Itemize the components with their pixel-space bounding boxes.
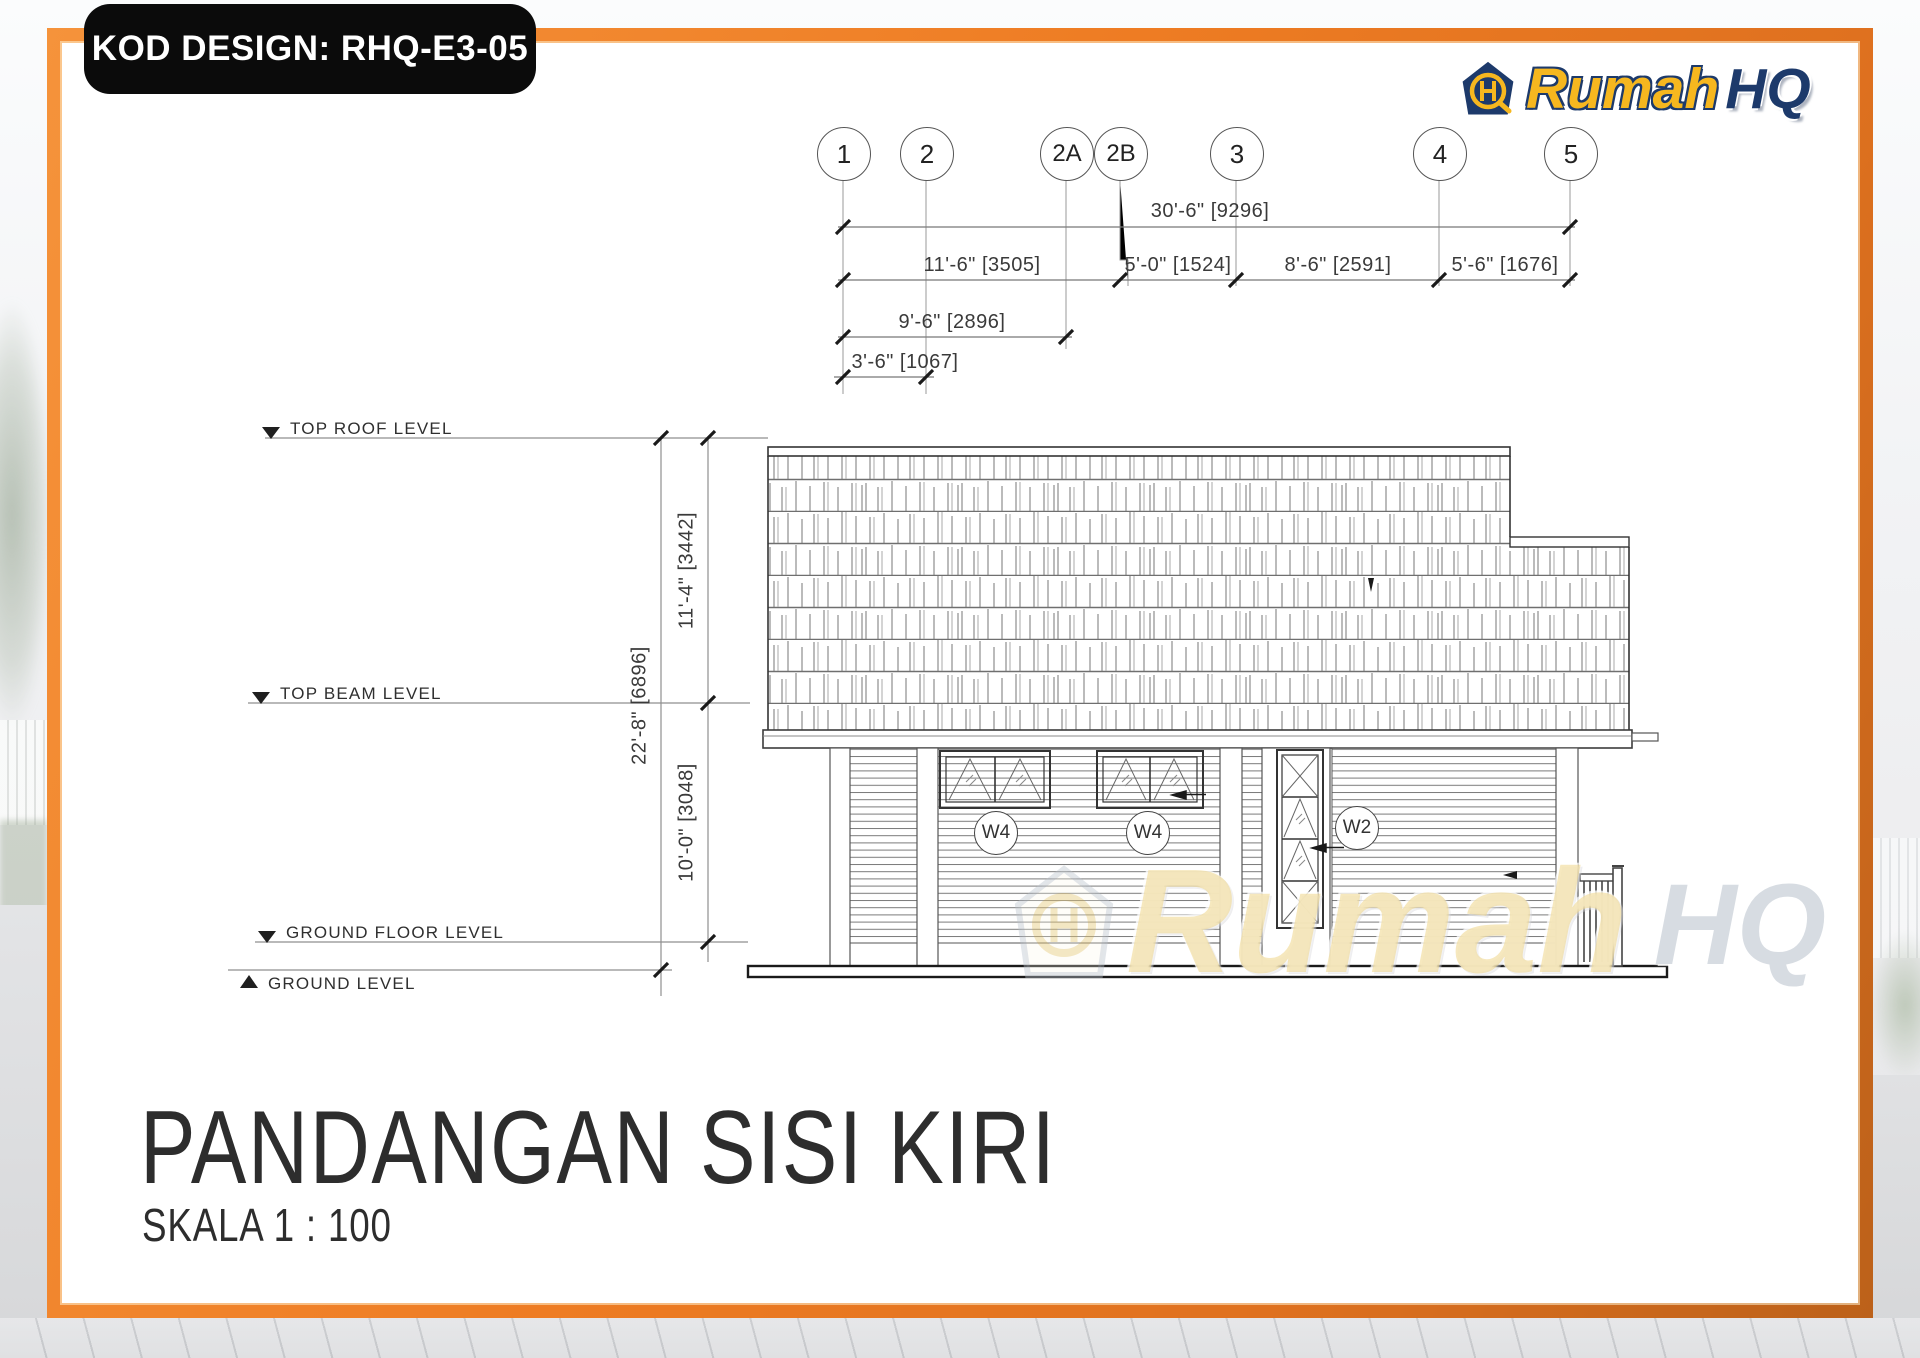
window-tag-w4-2-label: W4	[1134, 822, 1163, 844]
grid-bubble-2b: 2B	[1094, 127, 1148, 181]
window-tag-w4-1: W4	[974, 811, 1018, 855]
grid-bubble-2-label: 2	[920, 139, 934, 170]
elevation-sheet-page: KOD DESIGN: RHQ-E3-05 Rumah HQ	[0, 0, 1920, 1358]
window-tag-w2: W2	[1335, 806, 1379, 850]
dim-segment-1: 11'-6" [3505]	[923, 254, 1040, 277]
roof	[763, 447, 1658, 748]
window-tag-w4-2: W4	[1126, 811, 1170, 855]
level-label-ground-floor: GROUND FLOOR LEVEL	[286, 923, 504, 943]
level-markers	[240, 427, 280, 988]
dim-vertical-lower: 10'-0" [3048]	[676, 703, 699, 943]
dim-sub-overall: 9'-6" [2896]	[899, 311, 1006, 334]
dim-segment-4: 5'-6" [1676]	[1452, 254, 1559, 277]
level-label-top-beam: TOP BEAM LEVEL	[280, 684, 442, 704]
dim-sub-segment: 3'-6" [1067]	[852, 351, 959, 374]
level-label-top-roof: TOP ROOF LEVEL	[290, 419, 453, 439]
window-tag-w2-label: W2	[1343, 817, 1372, 839]
dim-vertical-overall: 22'-8" [6896]	[629, 586, 652, 826]
grid-bubble-1-label: 1	[837, 139, 851, 170]
drawing-scale: SKALA 1 : 100	[142, 1198, 392, 1252]
grid-bubble-4: 4	[1413, 127, 1467, 181]
page-title: PANDANGAN SISI KIRI	[140, 1094, 1057, 1203]
dim-segment-2: 5'-0" [1524]	[1125, 254, 1232, 277]
dim-segment-3: 8'-6" [2591]	[1285, 254, 1392, 277]
grid-bubble-3-label: 3	[1230, 139, 1244, 170]
grid-bubble-5-label: 5	[1564, 139, 1578, 170]
grid-bubble-3: 3	[1210, 127, 1264, 181]
dim-vertical-upper: 11'-4" [3442]	[676, 451, 699, 691]
porch-railing	[1580, 866, 1624, 966]
walls	[748, 748, 1667, 977]
grid-bubble-4-label: 4	[1433, 139, 1447, 170]
level-label-ground: GROUND LEVEL	[268, 974, 416, 994]
grid-bubble-2a-label: 2A	[1052, 140, 1081, 168]
grid-bubble-2: 2	[900, 127, 954, 181]
grid-bubble-1: 1	[817, 127, 871, 181]
grid-bubble-2a: 2A	[1040, 127, 1094, 181]
window-tag-w4-1-label: W4	[982, 822, 1011, 844]
dim-overall: 30'-6" [9296]	[1151, 200, 1270, 223]
grid-bubble-5: 5	[1544, 127, 1598, 181]
grid-bubble-2b-label: 2B	[1106, 140, 1135, 168]
